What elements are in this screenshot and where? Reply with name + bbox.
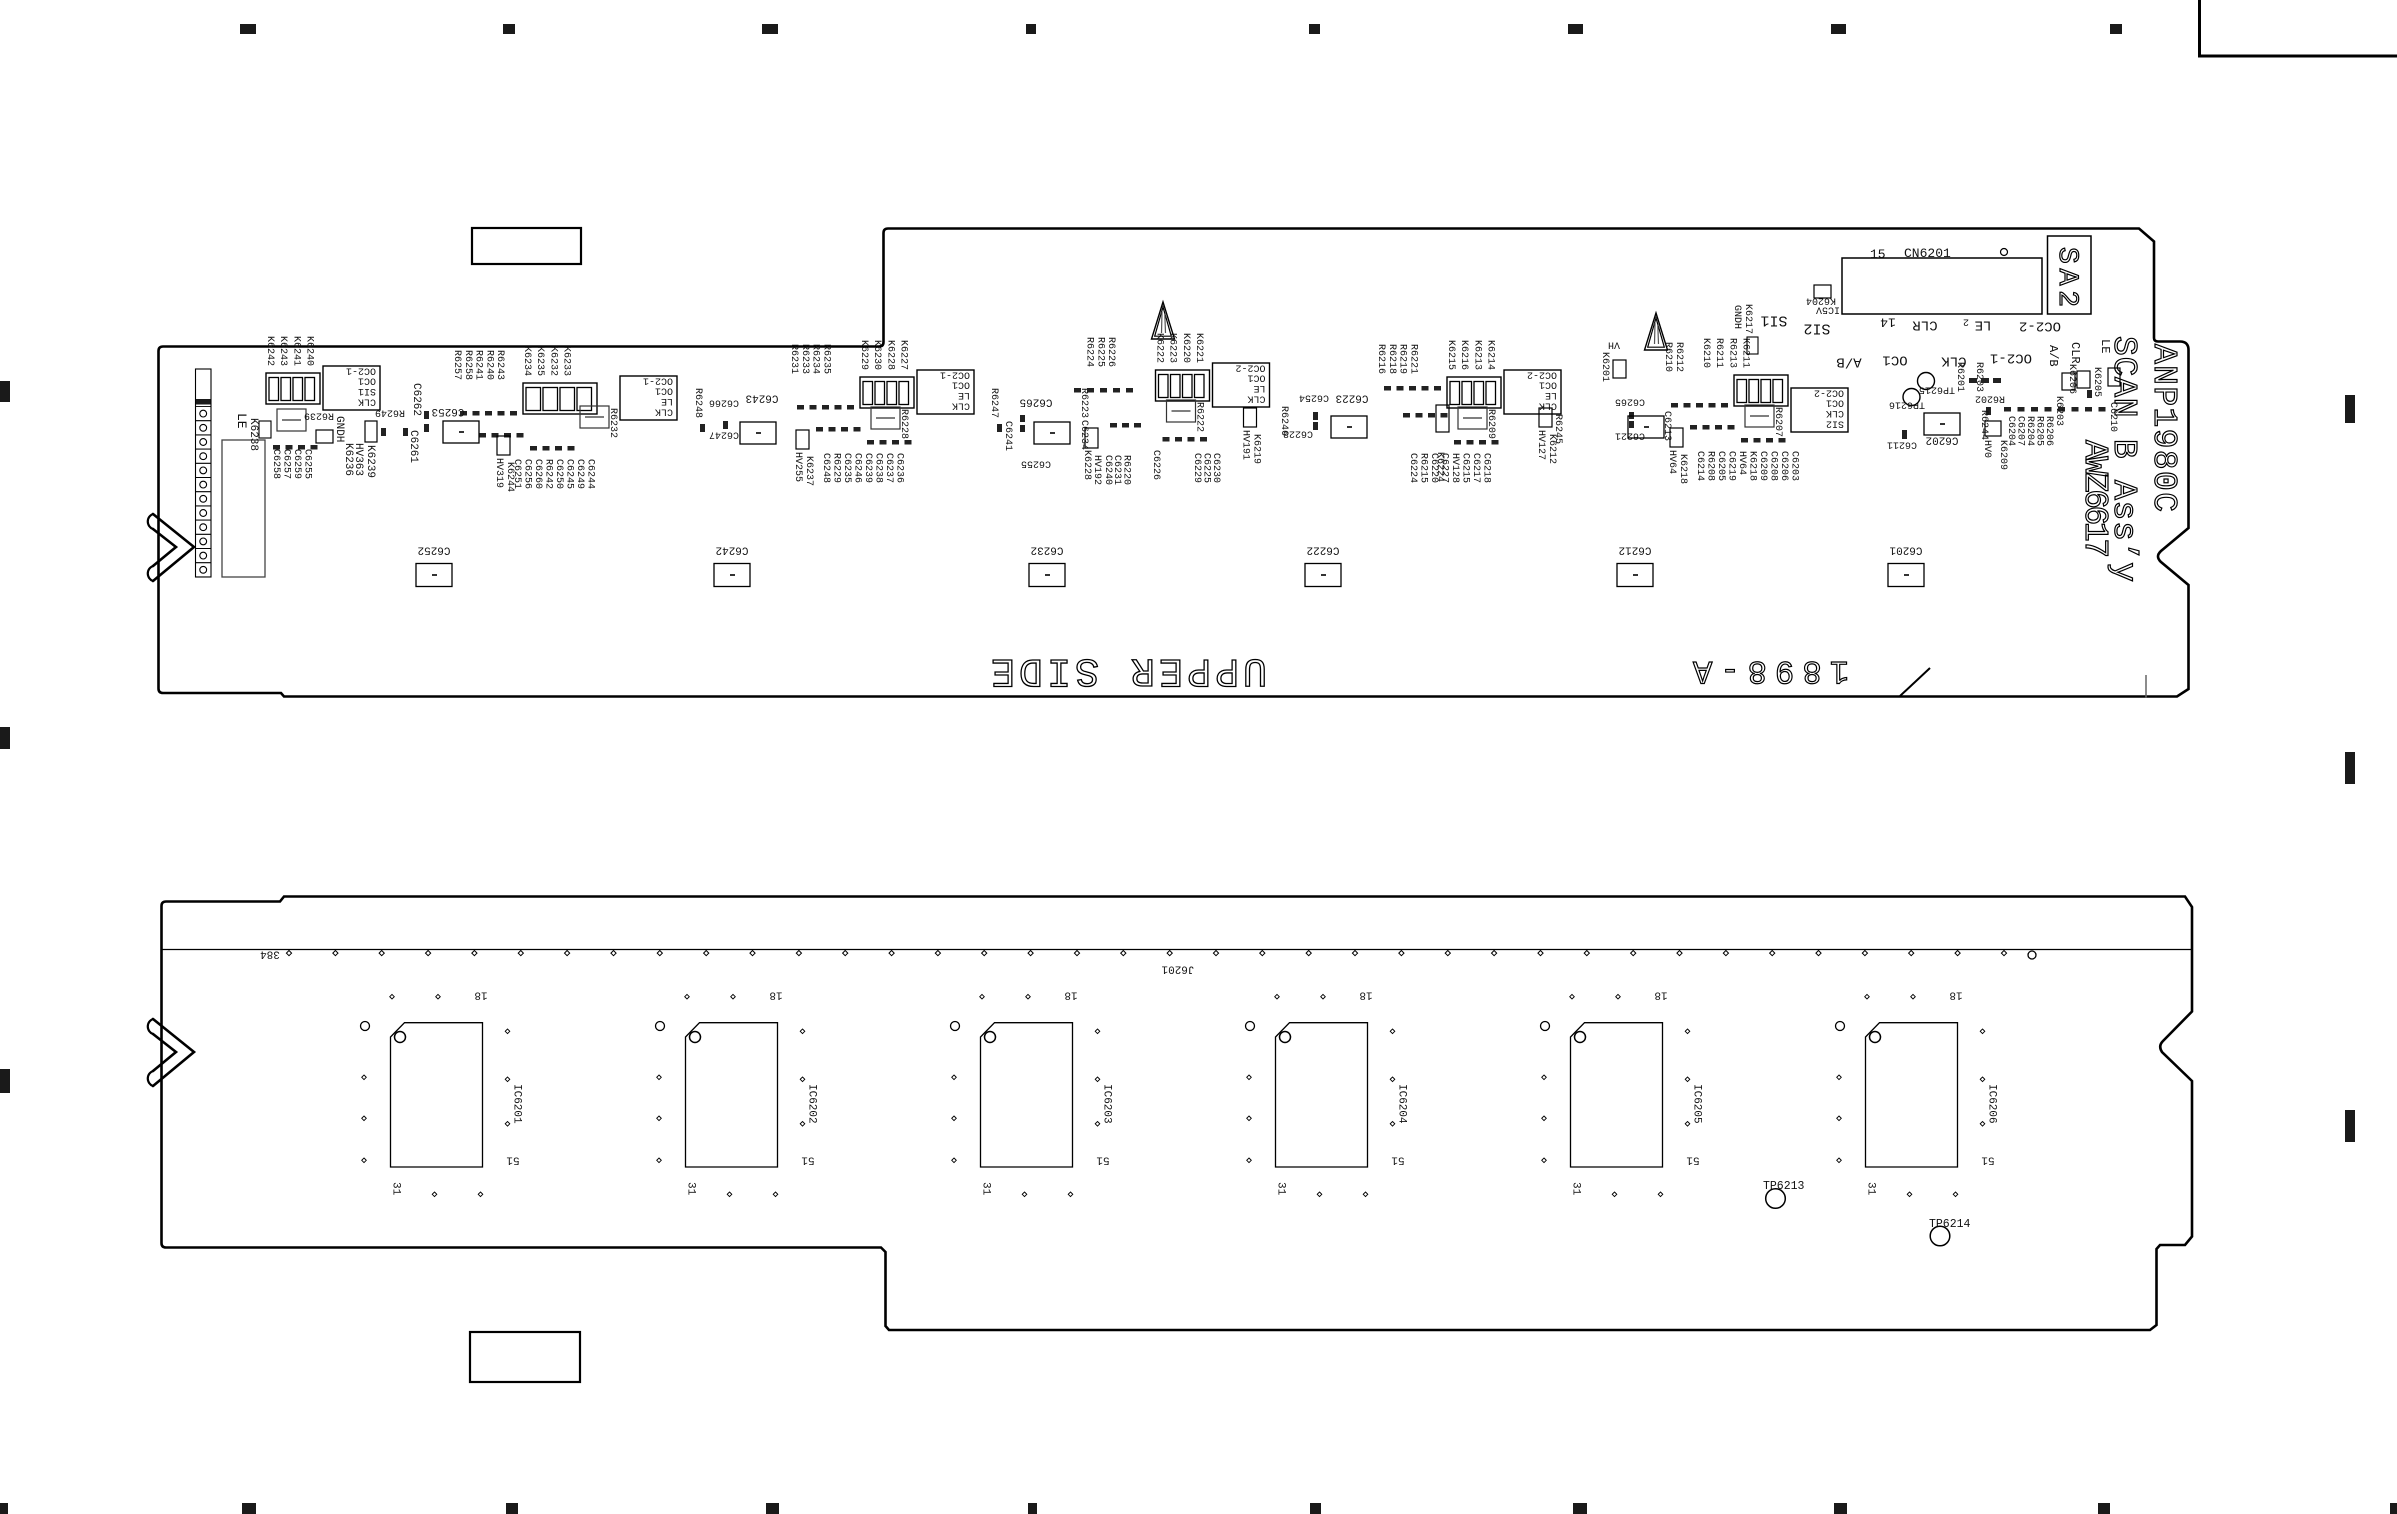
svg-text:C6248: C6248 bbox=[820, 453, 831, 483]
svg-text:C6253: C6253 bbox=[431, 405, 464, 417]
svg-text:A/B: A/B bbox=[2046, 345, 2060, 367]
svg-text:C6252: C6252 bbox=[417, 544, 450, 556]
svg-text:18: 18 bbox=[1064, 989, 1077, 1001]
svg-text:K6220: K6220 bbox=[1180, 333, 1191, 363]
svg-text:C6260: C6260 bbox=[532, 459, 543, 489]
svg-text:K6206: K6206 bbox=[2066, 364, 2077, 394]
svg-text:51: 51 bbox=[1391, 1154, 1405, 1166]
svg-text:R6233: R6233 bbox=[799, 344, 810, 374]
svg-text:OC2-1: OC2-1 bbox=[940, 368, 970, 379]
svg-text:C6207: C6207 bbox=[2015, 416, 2026, 446]
svg-text:R6220: R6220 bbox=[1120, 455, 1131, 485]
svg-text:K6219: K6219 bbox=[1251, 434, 1262, 464]
svg-text:HV191: HV191 bbox=[1240, 430, 1251, 460]
svg-text:C6230: C6230 bbox=[1210, 453, 1221, 483]
svg-text:C6247: C6247 bbox=[709, 429, 739, 440]
svg-text:C6259: C6259 bbox=[291, 449, 302, 479]
svg-text:C6257: C6257 bbox=[281, 449, 292, 479]
svg-text:C6206: C6206 bbox=[1778, 451, 1789, 481]
svg-text:OC2-1: OC2-1 bbox=[643, 374, 673, 385]
svg-text:R6215: R6215 bbox=[1418, 453, 1429, 483]
svg-text:R6241: R6241 bbox=[473, 350, 484, 380]
svg-text:K6241: K6241 bbox=[290, 336, 301, 366]
svg-text:R6239: R6239 bbox=[304, 410, 334, 421]
svg-text:IC6203: IC6203 bbox=[1101, 1084, 1113, 1124]
svg-text:31: 31 bbox=[1865, 1182, 1877, 1196]
svg-text:51: 51 bbox=[1981, 1154, 1995, 1166]
svg-text:K6218: K6218 bbox=[1747, 451, 1758, 481]
svg-text:18: 18 bbox=[474, 989, 487, 1001]
svg-text:R6206: R6206 bbox=[2043, 416, 2054, 446]
svg-text:C6223: C6223 bbox=[1335, 392, 1368, 404]
svg-text:HV363: HV363 bbox=[352, 443, 364, 476]
svg-text:IC6206: IC6206 bbox=[1986, 1084, 1998, 1124]
svg-text:C6203: C6203 bbox=[1789, 451, 1800, 481]
svg-text:R6219: R6219 bbox=[1397, 344, 1408, 374]
svg-text:OC2-1: OC2-1 bbox=[1990, 350, 2032, 366]
svg-text:CLK: CLK bbox=[358, 396, 376, 407]
svg-text:51: 51 bbox=[506, 1154, 520, 1166]
svg-text:C6262: C6262 bbox=[410, 383, 422, 416]
svg-text:R6243: R6243 bbox=[494, 350, 505, 380]
svg-text:K6233: K6233 bbox=[561, 346, 572, 376]
svg-text:C6238: C6238 bbox=[873, 453, 884, 483]
svg-text:C6245: C6245 bbox=[564, 459, 575, 489]
svg-text:OC2-2: OC2-2 bbox=[2019, 318, 2061, 334]
svg-text:LE: LE bbox=[234, 413, 249, 429]
svg-text:C6256: C6256 bbox=[522, 459, 533, 489]
svg-text:R6209: R6209 bbox=[1485, 409, 1496, 439]
svg-text:R6249: R6249 bbox=[375, 407, 405, 418]
svg-text:OC1: OC1 bbox=[1882, 352, 1907, 368]
svg-text:HV0: HV0 bbox=[1981, 440, 1992, 458]
svg-text:C6214: C6214 bbox=[1694, 451, 1705, 481]
svg-text:K6229: K6229 bbox=[858, 340, 869, 370]
svg-text:HV64: HV64 bbox=[1666, 450, 1677, 474]
svg-text:TP6214: TP6214 bbox=[1929, 1218, 1971, 1231]
svg-text:C6222: C6222 bbox=[1306, 544, 1339, 556]
svg-text:LE: LE bbox=[661, 395, 673, 406]
svg-text:HV319: HV319 bbox=[493, 458, 504, 488]
svg-text:C6221: C6221 bbox=[1615, 430, 1645, 441]
svg-text:R6228: R6228 bbox=[898, 409, 909, 439]
svg-text:K6235: K6235 bbox=[534, 346, 545, 376]
svg-text:R6213: R6213 bbox=[1726, 338, 1737, 368]
svg-text:C6225: C6225 bbox=[1201, 453, 1212, 483]
svg-text:K6221: K6221 bbox=[1193, 333, 1204, 363]
svg-text:R6232: R6232 bbox=[607, 408, 618, 438]
svg-text:GNDH: GNDH bbox=[1731, 305, 1742, 329]
svg-text:K6203: K6203 bbox=[2053, 396, 2064, 426]
svg-text:CLR: CLR bbox=[1912, 317, 1938, 333]
svg-text:ANP1980C: ANP1980C bbox=[2145, 344, 2182, 512]
svg-text:OC1: OC1 bbox=[358, 375, 376, 386]
svg-text:R6234: R6234 bbox=[810, 344, 821, 374]
svg-text:IC6201: IC6201 bbox=[511, 1084, 523, 1124]
svg-text:C6204: C6204 bbox=[2005, 416, 2016, 446]
svg-text:R6205: R6205 bbox=[2034, 416, 2045, 446]
svg-text:HV127: HV127 bbox=[1535, 430, 1546, 460]
svg-text:15: 15 bbox=[1870, 247, 1886, 262]
svg-text:R6226: R6226 bbox=[1105, 337, 1116, 367]
svg-text:K6230: K6230 bbox=[871, 340, 882, 370]
svg-text:C6235: C6235 bbox=[841, 453, 852, 483]
svg-text:18: 18 bbox=[1654, 989, 1667, 1001]
svg-text:R6242: R6242 bbox=[543, 459, 554, 489]
svg-text:C6229: C6229 bbox=[1191, 453, 1202, 483]
svg-text:IC5V: IC5V bbox=[1816, 304, 1840, 315]
svg-text:SI2: SI2 bbox=[1803, 320, 1830, 337]
svg-text:R6257: R6257 bbox=[451, 350, 462, 380]
svg-text:A/B: A/B bbox=[1836, 354, 1861, 370]
svg-text:18: 18 bbox=[769, 989, 782, 1001]
svg-text:K6210: K6210 bbox=[1700, 338, 1711, 368]
svg-text:K6224: K6224 bbox=[1434, 452, 1445, 482]
svg-text:K6213: K6213 bbox=[1471, 340, 1482, 370]
svg-text:K6240: K6240 bbox=[304, 336, 315, 366]
svg-text:R6212: R6212 bbox=[1673, 342, 1684, 372]
svg-text:CLK: CLK bbox=[952, 400, 970, 411]
svg-text:TP6215: TP6215 bbox=[1919, 384, 1955, 395]
svg-text:K6211: K6211 bbox=[1740, 338, 1751, 368]
svg-text:31: 31 bbox=[1275, 1182, 1287, 1196]
svg-text:K6216: K6216 bbox=[1458, 340, 1469, 370]
svg-text:K6205: K6205 bbox=[2091, 367, 2102, 397]
svg-text:C6213: C6213 bbox=[1661, 411, 1672, 441]
svg-text:C6217: C6217 bbox=[1470, 453, 1481, 483]
svg-text:CLK: CLK bbox=[655, 406, 673, 417]
svg-text:OC1: OC1 bbox=[952, 379, 970, 390]
svg-text:K6223: K6223 bbox=[1167, 333, 1178, 363]
svg-text:K6214: K6214 bbox=[1485, 340, 1496, 370]
svg-text:C6249: C6249 bbox=[574, 459, 585, 489]
svg-text:C6246: C6246 bbox=[852, 453, 863, 483]
svg-text:CLR: CLR bbox=[2068, 342, 2082, 364]
svg-text:TP6216: TP6216 bbox=[1889, 399, 1925, 410]
svg-text:IC6205: IC6205 bbox=[1691, 1084, 1703, 1124]
svg-text:OC2-1: OC2-1 bbox=[346, 364, 376, 375]
svg-text:2: 2 bbox=[1963, 316, 1969, 327]
svg-text:HV64: HV64 bbox=[1736, 451, 1747, 475]
svg-text:C6212: C6212 bbox=[1618, 544, 1651, 556]
svg-text:C6250: C6250 bbox=[553, 459, 564, 489]
svg-text:C6241: C6241 bbox=[1002, 421, 1013, 451]
svg-text:C6226: C6226 bbox=[1150, 450, 1161, 480]
svg-text:R6218: R6218 bbox=[1386, 344, 1397, 374]
svg-text:C6244: C6244 bbox=[585, 459, 596, 489]
svg-text:C6218: C6218 bbox=[1481, 453, 1492, 483]
svg-text:HV192: HV192 bbox=[1091, 455, 1102, 485]
svg-text:R6224: R6224 bbox=[1084, 337, 1095, 367]
svg-text:R6203: R6203 bbox=[1973, 362, 1984, 392]
svg-text:K6234: K6234 bbox=[521, 346, 532, 376]
svg-text:C6255: C6255 bbox=[1021, 458, 1051, 469]
svg-text:GNDH: GNDH bbox=[333, 416, 345, 442]
svg-text:C6232: C6232 bbox=[1030, 544, 1063, 556]
svg-text:R6204: R6204 bbox=[2024, 416, 2035, 446]
svg-text:18: 18 bbox=[1949, 989, 1962, 1001]
svg-text:OC1: OC1 bbox=[1826, 397, 1844, 408]
svg-text:R6231: R6231 bbox=[788, 344, 799, 374]
svg-text:HV255: HV255 bbox=[792, 452, 803, 482]
svg-text:C6265: C6265 bbox=[1615, 396, 1645, 407]
svg-text:LE: LE bbox=[1545, 389, 1557, 400]
svg-text:J6201: J6201 bbox=[1161, 963, 1194, 975]
svg-text:C6208: C6208 bbox=[1768, 451, 1779, 481]
svg-text:C6261: C6261 bbox=[407, 430, 419, 463]
svg-text:K6239: K6239 bbox=[364, 445, 376, 478]
svg-text:OC1: OC1 bbox=[1247, 372, 1265, 383]
svg-text:31: 31 bbox=[980, 1182, 992, 1196]
svg-text:K6222: K6222 bbox=[1154, 333, 1165, 363]
svg-text:SI2: SI2 bbox=[1826, 418, 1844, 429]
svg-text:K6242: K6242 bbox=[264, 336, 275, 366]
svg-text:LE: LE bbox=[1975, 317, 1992, 333]
svg-text:C6251: C6251 bbox=[511, 459, 522, 489]
svg-text:K6238: K6238 bbox=[247, 418, 259, 451]
svg-text:C6211: C6211 bbox=[1887, 439, 1917, 450]
svg-text:51: 51 bbox=[801, 1154, 815, 1166]
svg-text:K6232: K6232 bbox=[547, 346, 558, 376]
svg-text:C6209: C6209 bbox=[1757, 451, 1768, 481]
svg-text:C6265: C6265 bbox=[1019, 396, 1052, 408]
svg-text:R6222: R6222 bbox=[1194, 402, 1205, 432]
svg-text:R6245: R6245 bbox=[1552, 414, 1563, 444]
svg-text:SA2: SA2 bbox=[2051, 247, 2082, 307]
svg-text:C6224: C6224 bbox=[1407, 453, 1418, 483]
svg-text:K6218: K6218 bbox=[1677, 454, 1688, 484]
svg-text:K6227: K6227 bbox=[898, 340, 909, 370]
svg-text:R6221: R6221 bbox=[1407, 344, 1418, 374]
svg-text:K6243: K6243 bbox=[277, 336, 288, 366]
svg-text:OC2-2: OC2-2 bbox=[1235, 361, 1265, 372]
svg-text:R6207: R6207 bbox=[1772, 407, 1783, 437]
svg-text:R6248: R6248 bbox=[692, 388, 703, 418]
svg-text:OC1: OC1 bbox=[655, 385, 673, 396]
svg-text:LE: LE bbox=[958, 389, 970, 400]
svg-text:K6215: K6215 bbox=[1445, 340, 1456, 370]
svg-text:R6258: R6258 bbox=[462, 350, 473, 380]
svg-text:R6223: R6223 bbox=[1078, 388, 1089, 418]
svg-text:C6242: C6242 bbox=[715, 544, 748, 556]
svg-text:R6225: R6225 bbox=[1094, 337, 1105, 367]
svg-text:R6202: R6202 bbox=[1975, 393, 2005, 404]
svg-text:C6254: C6254 bbox=[1299, 392, 1329, 403]
svg-text:K6228: K6228 bbox=[884, 340, 895, 370]
svg-text:LE: LE bbox=[1253, 382, 1265, 393]
svg-text:AWZ6617: AWZ6617 bbox=[2076, 440, 2113, 558]
svg-text:CN6201: CN6201 bbox=[1904, 246, 1951, 261]
svg-text:IC6204: IC6204 bbox=[1396, 1084, 1408, 1124]
svg-text:IC6202: IC6202 bbox=[806, 1084, 818, 1124]
svg-text:R6247: R6247 bbox=[988, 388, 999, 418]
svg-text:C6201: C6201 bbox=[1889, 544, 1922, 556]
svg-text:R6229: R6229 bbox=[831, 453, 842, 483]
svg-text:R6235: R6235 bbox=[820, 344, 831, 374]
svg-text:VH: VH bbox=[1608, 339, 1620, 350]
svg-text:K6228: K6228 bbox=[1081, 450, 1092, 480]
svg-text:31: 31 bbox=[685, 1182, 697, 1196]
svg-text:31: 31 bbox=[390, 1182, 402, 1196]
svg-text:C6205: C6205 bbox=[1715, 451, 1726, 481]
svg-text:18: 18 bbox=[1359, 989, 1372, 1001]
svg-text:14: 14 bbox=[1880, 315, 1896, 330]
svg-text:OC2-2: OC2-2 bbox=[1527, 368, 1557, 379]
svg-text:SI1: SI1 bbox=[1760, 312, 1787, 329]
svg-text:C6243: C6243 bbox=[745, 392, 778, 404]
svg-text:CLK: CLK bbox=[1539, 400, 1557, 411]
svg-text:R6201: R6201 bbox=[1954, 362, 1965, 392]
svg-text:C6239: C6239 bbox=[862, 453, 873, 483]
svg-text:K6217: K6217 bbox=[1742, 304, 1753, 334]
svg-text:C6202: C6202 bbox=[1925, 434, 1958, 446]
svg-text:K6201: K6201 bbox=[1599, 352, 1610, 382]
svg-text:51: 51 bbox=[1096, 1154, 1110, 1166]
svg-text:C6255: C6255 bbox=[302, 449, 313, 479]
svg-text:CLK: CLK bbox=[1247, 393, 1265, 404]
svg-text:OC2-2: OC2-2 bbox=[1814, 386, 1844, 397]
svg-text:K6237: K6237 bbox=[803, 456, 814, 486]
svg-text:31: 31 bbox=[1570, 1182, 1582, 1196]
svg-text:C6237: C6237 bbox=[883, 453, 894, 483]
svg-text:SI1: SI1 bbox=[358, 385, 376, 396]
svg-text:R6208: R6208 bbox=[1705, 451, 1716, 481]
svg-text:C6236: C6236 bbox=[894, 453, 905, 483]
svg-text:384: 384 bbox=[260, 948, 280, 960]
svg-text:R6216: R6216 bbox=[1375, 344, 1386, 374]
svg-text:C6234: C6234 bbox=[1078, 420, 1089, 450]
svg-text:51: 51 bbox=[1686, 1154, 1700, 1166]
svg-text:HV128: HV128 bbox=[1449, 453, 1460, 483]
svg-text:R6246: R6246 bbox=[1278, 406, 1289, 436]
svg-text:C6258: C6258 bbox=[270, 449, 281, 479]
svg-text:R6211: R6211 bbox=[1713, 338, 1724, 368]
svg-text:C6215: C6215 bbox=[1460, 453, 1471, 483]
svg-text:C6219: C6219 bbox=[1726, 451, 1737, 481]
svg-text:R6240: R6240 bbox=[483, 350, 494, 380]
svg-text:C6266: C6266 bbox=[709, 397, 739, 408]
svg-text:CLK: CLK bbox=[1826, 407, 1844, 418]
svg-text:OC1: OC1 bbox=[1539, 379, 1557, 390]
